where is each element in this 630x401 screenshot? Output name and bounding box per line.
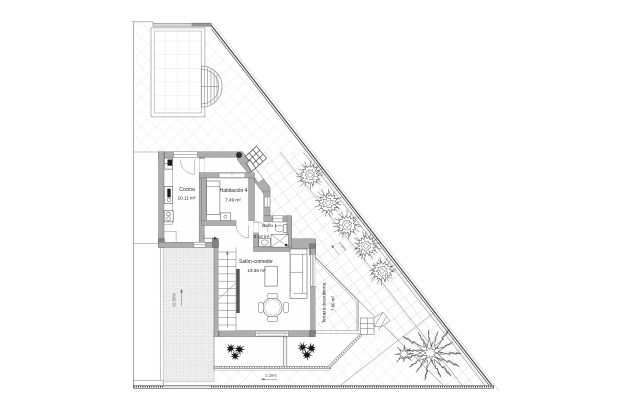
svg-text:10.11 m²: 10.11 m² [178,195,196,200]
svg-text:Terraza descubierta: Terraza descubierta [322,282,327,323]
svg-text:2.53 m²: 2.53 m² [254,234,270,239]
svg-text:7.60 m²: 7.60 m² [331,296,336,311]
svg-text:Salón-comedor: Salón-comedor [239,259,273,265]
svg-text:Habitación 4: Habitación 4 [220,188,248,194]
svg-text:7.49 m²: 7.49 m² [225,198,241,203]
svg-text:Cocina: Cocina [179,187,195,193]
svg-text:19.36 m²: 19.36 m² [247,268,266,273]
svg-text:Baño 1: Baño 1 [262,223,277,228]
svg-text:2.39%: 2.39% [265,373,277,378]
svg-text:16.56%: 16.56% [172,293,177,307]
